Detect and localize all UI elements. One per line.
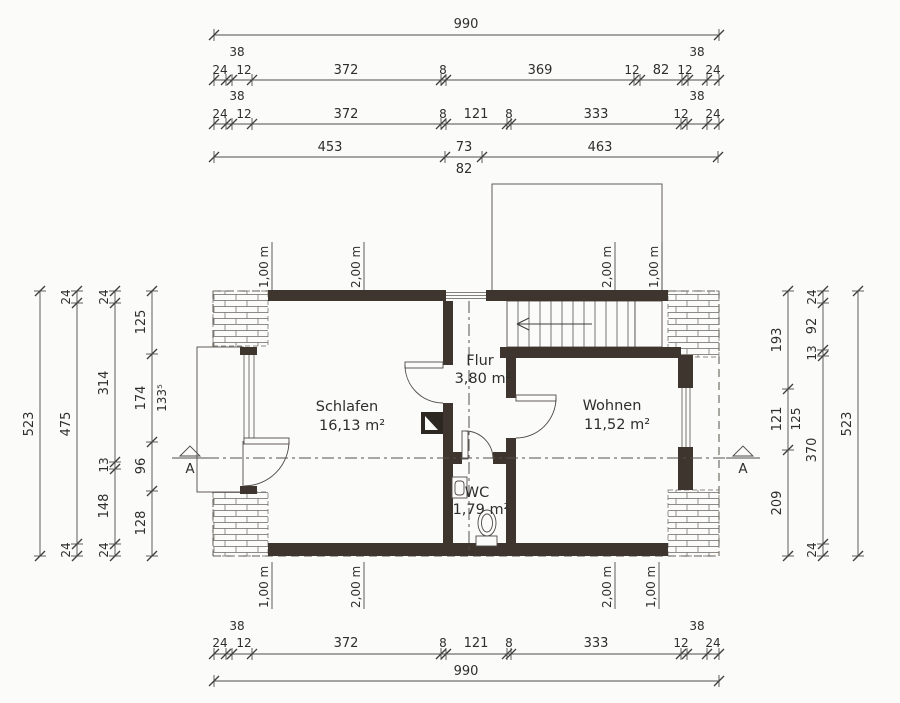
dims-right: 193 121 125 209 24 92 13 370 24 523 <box>770 286 864 561</box>
dim-label: 12 <box>236 63 251 77</box>
svg-text:1,00 m: 1,00 m <box>647 246 661 288</box>
dim-label: 24 <box>705 63 720 77</box>
dim-label: 12 <box>677 63 692 77</box>
dim-label: 133⁵ <box>155 384 169 412</box>
dim-label: 523 <box>840 412 855 437</box>
dim-label: 523 <box>22 412 37 437</box>
height-label: 2,00 m <box>600 242 615 290</box>
section-label: A <box>738 461 748 477</box>
dim-label: 128 <box>134 511 149 536</box>
dim-label: 38 <box>229 89 244 103</box>
height-label: 1,00 m <box>647 242 662 290</box>
dims-top: 990 24 12 38 372 8 369 12 82 12 38 24 24… <box>209 17 724 177</box>
dim-label: 38 <box>689 89 704 103</box>
dim-label: 121 <box>464 107 489 122</box>
dim-label: 38 <box>229 619 244 633</box>
dim-label: 12 <box>673 636 688 650</box>
dim-label: 463 <box>588 140 613 155</box>
room-label-schlafen: Schlafen 16,13 m² <box>316 399 385 434</box>
floor-plan-canvas: A A Schlafen 16,13 m² Wohnen 11,52 m² Fl… <box>0 0 900 703</box>
room-name: Schlafen <box>316 399 379 415</box>
dim-label: 174 <box>134 386 149 411</box>
room-area: 3,80 m² <box>455 371 512 387</box>
door-wc <box>462 431 493 459</box>
room-label-flur: Flur 3,80 m² <box>455 353 512 387</box>
dim-label: 209 <box>770 491 785 516</box>
dim-label: 24 <box>59 289 73 304</box>
dim-label: 369 <box>528 63 553 78</box>
svg-text:1,00 m: 1,00 m <box>257 246 271 288</box>
dim-label: 12 <box>673 107 688 121</box>
svg-text:2,00 m: 2,00 m <box>600 566 614 608</box>
hatch-bottom-right <box>668 490 719 556</box>
dim-label: 13 <box>805 345 819 360</box>
height-label: 2,00 m <box>349 562 364 609</box>
window-top-flur <box>446 290 486 301</box>
svg-text:2,00 m: 2,00 m <box>349 246 363 288</box>
dim-label: 73 <box>456 140 473 155</box>
dormer-left-outline <box>197 347 243 492</box>
dim-label: 38 <box>689 619 704 633</box>
height-label: 1,00 m <box>257 242 272 290</box>
dim-label: 8 <box>505 636 513 650</box>
height-labels-top: 1,00 m 2,00 m 2,00 m 1,00 m <box>257 242 662 290</box>
dim-label: 24 <box>805 289 819 304</box>
dim-label: 8 <box>439 63 447 77</box>
dim-label: 125 <box>789 408 803 431</box>
room-area: 1,79 m² <box>453 502 510 518</box>
height-label: 1,00 m <box>644 562 659 609</box>
svg-text:2,00 m: 2,00 m <box>349 566 363 608</box>
section-marker-right: A <box>726 446 760 477</box>
dim-label: 125 <box>134 310 149 335</box>
svg-text:1,00 m: 1,00 m <box>257 566 271 608</box>
dim-label: 333 <box>584 636 609 651</box>
dim-label: 96 <box>134 458 149 475</box>
dim-label: 8 <box>439 636 447 650</box>
door-schlafen-flur <box>405 362 443 403</box>
dim-label: 8 <box>439 107 447 121</box>
dim-label: 121 <box>770 407 785 432</box>
room-label-wohnen: Wohnen 11,52 m² <box>583 398 650 433</box>
dim-label: 333 <box>584 107 609 122</box>
door-flur-wohnen <box>516 395 556 438</box>
hatch-top-left <box>213 291 268 346</box>
dim-label: 24 <box>59 542 73 557</box>
dim-label: 82 <box>653 63 670 78</box>
height-label: 1,00 m <box>257 562 272 609</box>
stairs <box>507 301 662 347</box>
dim-label: 92 <box>805 318 820 335</box>
dim-label: 24 <box>97 542 111 557</box>
height-labels-bottom: 1,00 m 2,00 m 2,00 m 1,00 m <box>257 562 659 609</box>
dim-label: 24 <box>705 107 720 121</box>
dim-label: 990 <box>454 664 479 679</box>
room-area: 11,52 m² <box>584 417 650 433</box>
hatch-bottom-left <box>213 492 268 556</box>
stair-landing <box>635 301 662 347</box>
dim-label: 24 <box>97 289 111 304</box>
svg-text:1,00 m: 1,00 m <box>644 566 658 608</box>
dims-bottom: 24 12 38 372 8 121 8 333 12 38 24 990 <box>209 619 724 687</box>
room-name: WC <box>465 485 489 501</box>
svg-text:2,00 m: 2,00 m <box>600 246 614 288</box>
window-right <box>678 388 693 447</box>
dim-label: 38 <box>689 45 704 59</box>
room-area: 16,13 m² <box>319 418 385 434</box>
dormer-top-outline <box>492 184 662 291</box>
dim-label: 370 <box>805 438 820 463</box>
dim-label: 12 <box>624 63 639 77</box>
dim-label: 12 <box>236 107 251 121</box>
dim-label: 24 <box>212 63 227 77</box>
dim-label: 121 <box>464 636 489 651</box>
dim-label: 372 <box>334 107 359 122</box>
dim-label: 24 <box>705 636 720 650</box>
room-name: Flur <box>466 353 494 369</box>
dims-left: 523 24 475 24 24 314 13 148 24 125 174 1… <box>22 286 169 561</box>
dim-label: 8 <box>505 107 513 121</box>
dim-label: 148 <box>97 494 112 519</box>
floor-plan-drawing: A A Schlafen 16,13 m² Wohnen 11,52 m² Fl… <box>0 0 900 703</box>
dim-label: 475 <box>59 412 74 437</box>
dim-label: 314 <box>97 371 112 396</box>
chimney-icon <box>421 412 443 434</box>
dim-label: 24 <box>805 542 819 557</box>
dim-label: 82 <box>456 162 473 177</box>
window-left <box>240 355 257 441</box>
dim-label: 372 <box>334 636 359 651</box>
dim-label: 453 <box>318 140 343 155</box>
dim-label: 38 <box>229 45 244 59</box>
dim-label: 24 <box>212 636 227 650</box>
dim-label: 372 <box>334 63 359 78</box>
dim-label: 12 <box>236 636 251 650</box>
height-label: 2,00 m <box>600 562 615 609</box>
height-label: 2,00 m <box>349 242 364 290</box>
section-label: A <box>185 461 195 477</box>
door-schlafen-balcony <box>244 438 289 486</box>
dim-label: 13 <box>97 457 111 472</box>
room-name: Wohnen <box>583 398 642 414</box>
dim-label: 193 <box>770 328 785 353</box>
dim-label: 990 <box>454 17 479 32</box>
dim-label: 24 <box>212 107 227 121</box>
